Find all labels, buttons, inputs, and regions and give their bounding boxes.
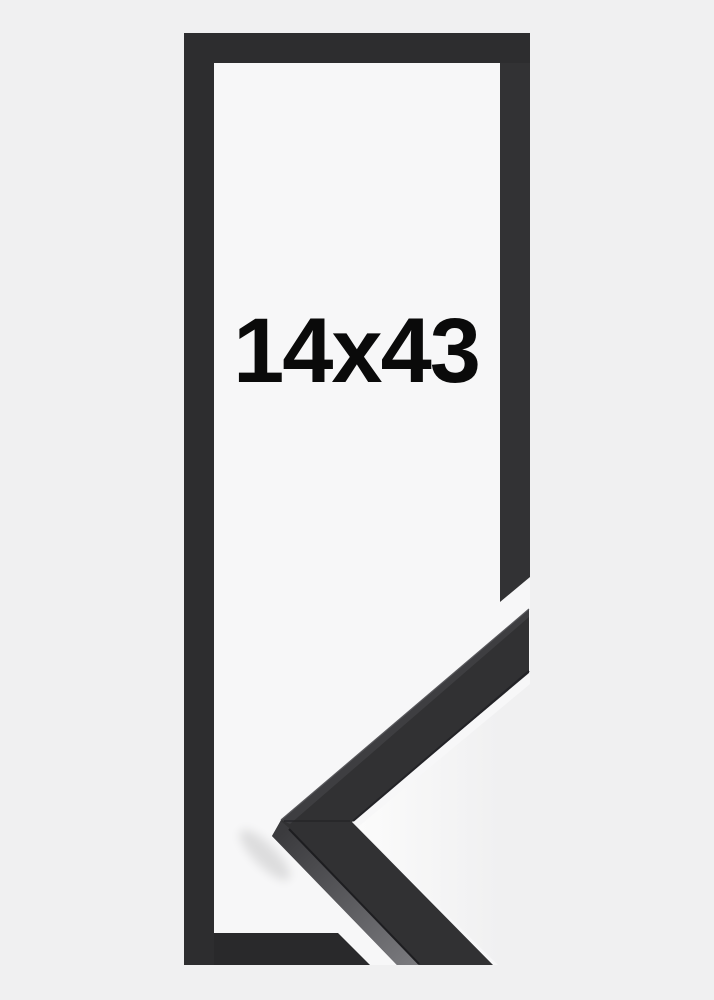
frame-schematic-right-bar [500,63,530,602]
size-label: 14x43 [233,300,479,402]
frame-product-image: 14x43 [0,0,714,1000]
frame-schematic-left-bar [184,33,214,965]
frame-product-canvas: 14x43 [0,0,714,1000]
frame-schematic-top-bar [184,33,530,63]
